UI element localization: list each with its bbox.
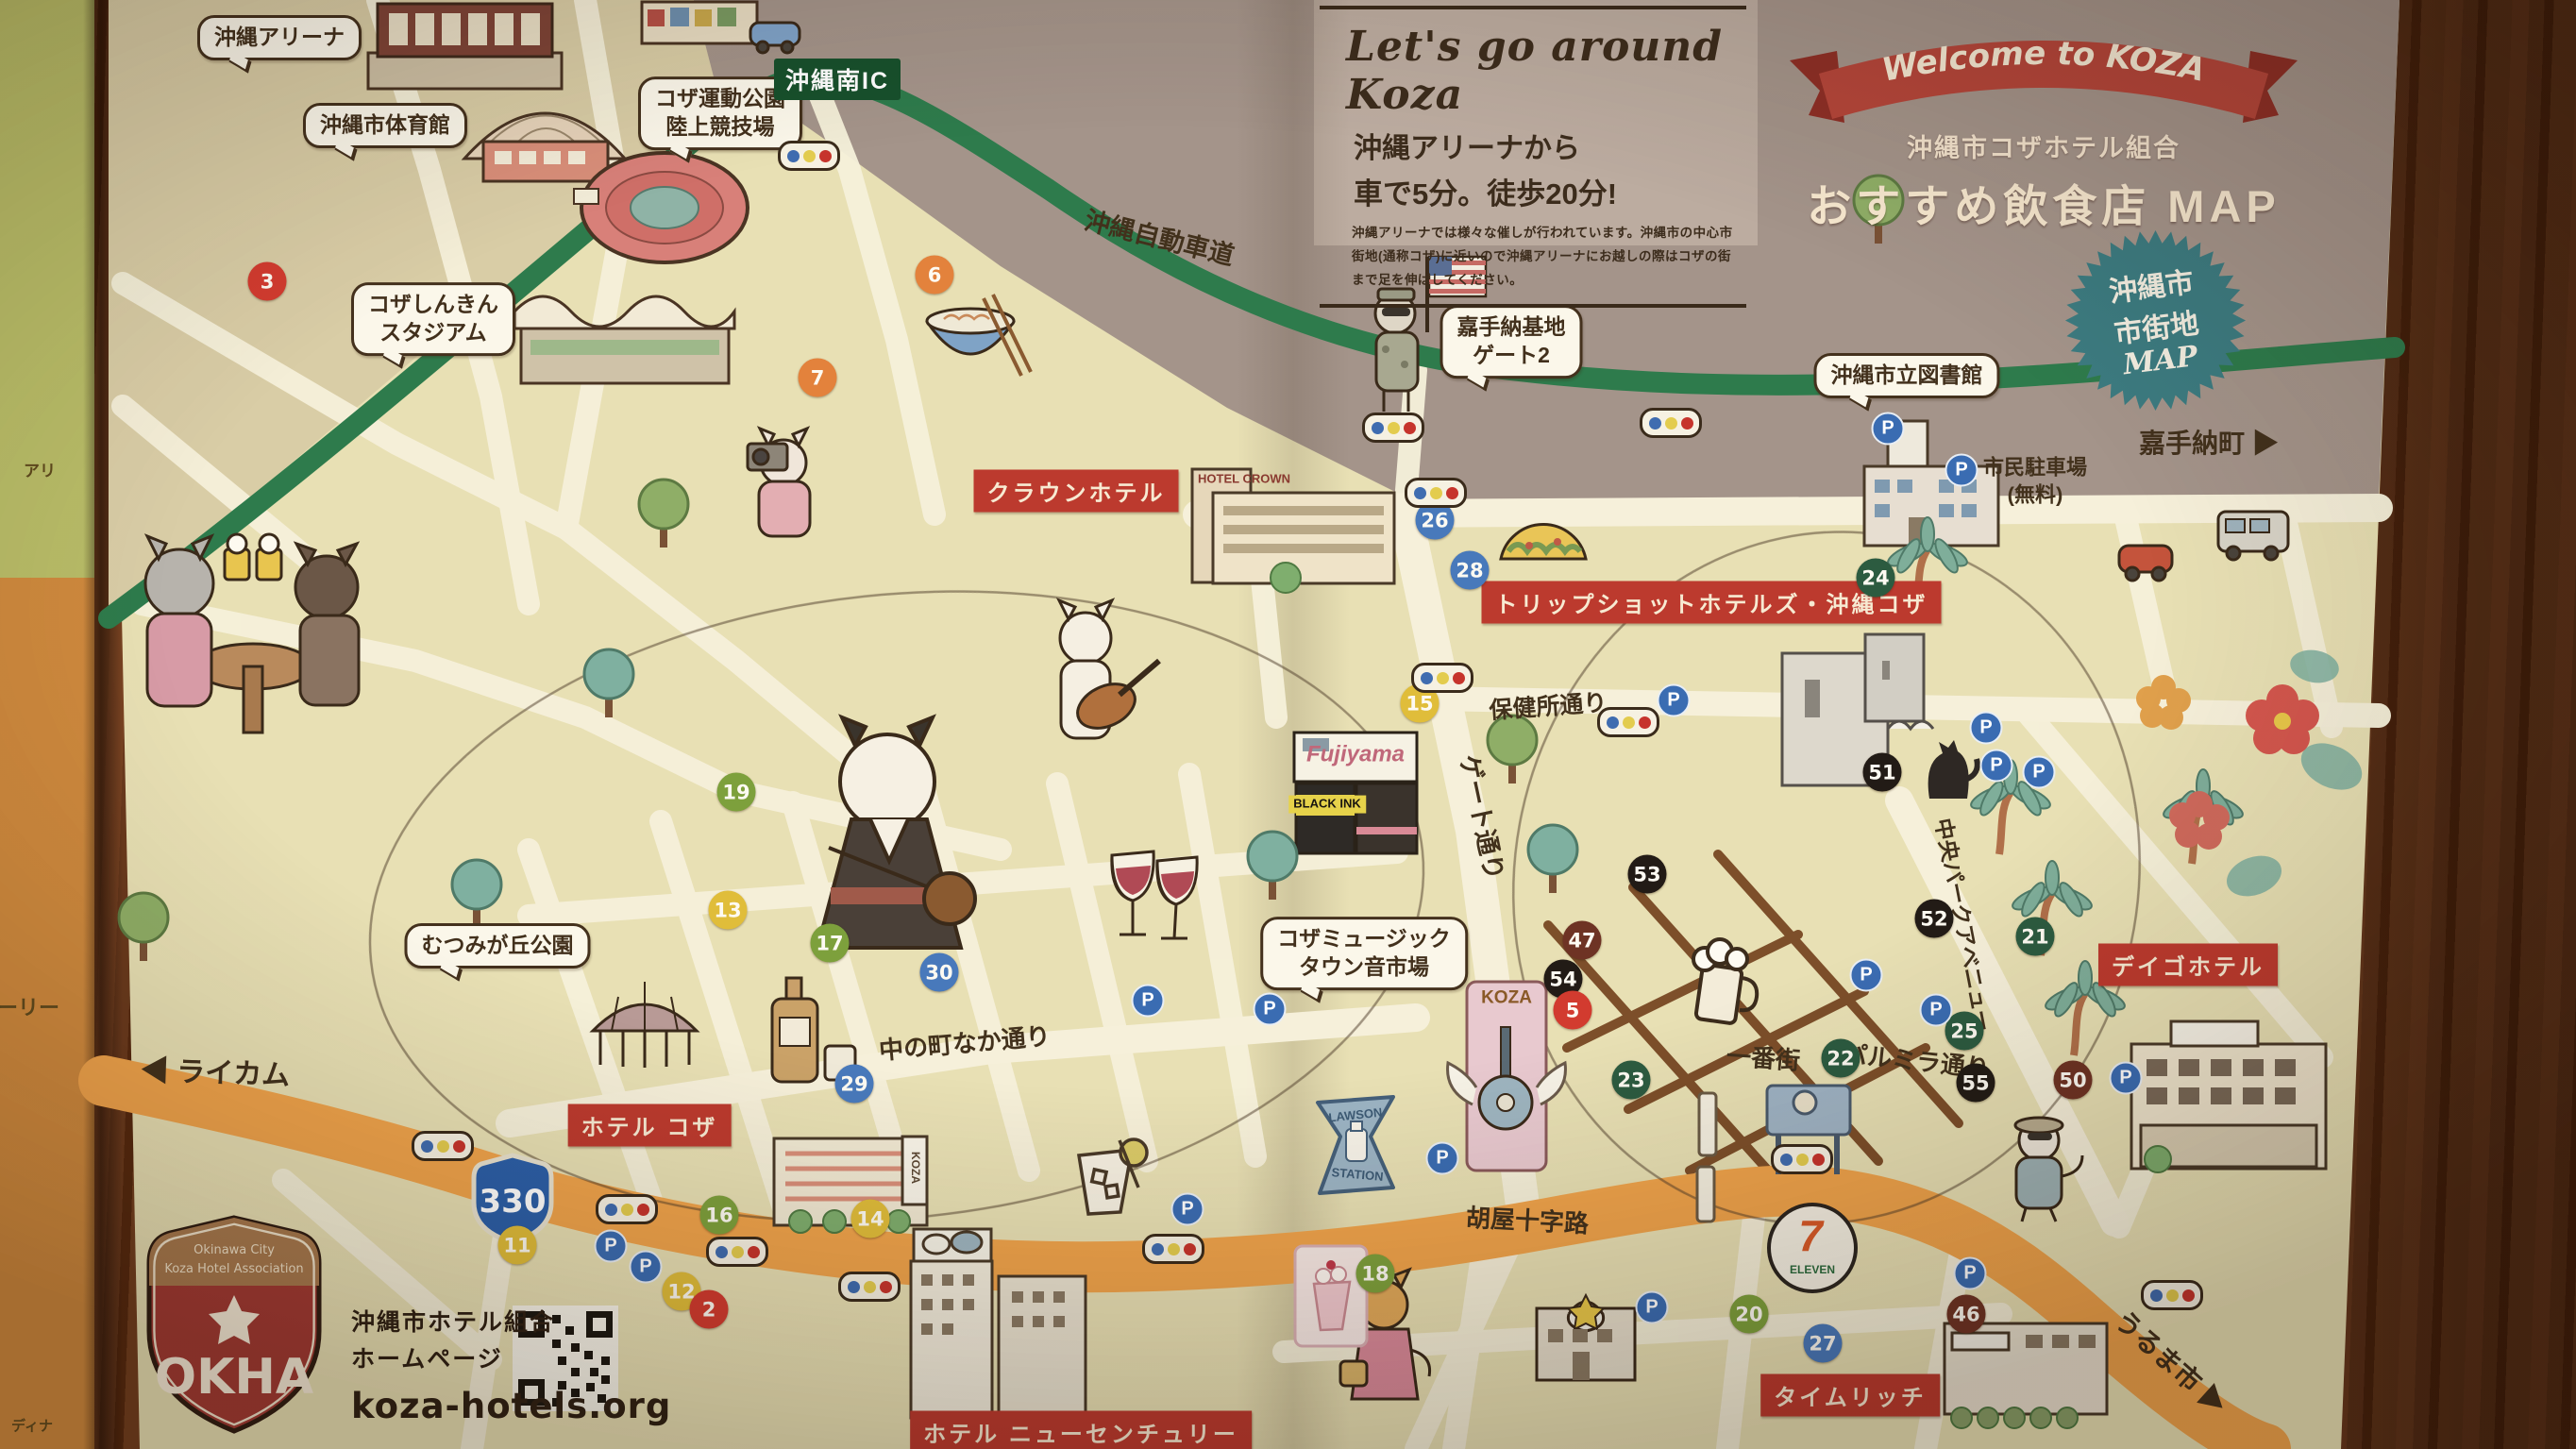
street-name-text: ゲート通り <box>1452 751 1510 883</box>
okinawa-minami-ic-sign: 沖縄南IC <box>774 59 901 100</box>
street-name-text: 嘉手納町 ▶ <box>2139 427 2279 461</box>
hotel-name-label: ホテル コザ <box>568 1104 732 1147</box>
map-marker-21: 21 <box>2016 918 2055 956</box>
traffic-light-icon <box>1142 1234 1204 1264</box>
okha-logo: Okinawa City Koza Hotel Association OKHA <box>140 1212 328 1439</box>
traffic-light-icon <box>1411 663 1473 693</box>
street-name-text: ELEVEN <box>1790 1263 1835 1278</box>
map-marker-27: 27 <box>1804 1324 1843 1363</box>
parking-icon: P <box>595 1230 628 1263</box>
street-name-text: 市民駐車場 (無料) <box>1983 454 2087 508</box>
parking-icon: P <box>1636 1291 1669 1324</box>
photo-of-koza-tourist-map: 330 沖縄アリーナ沖縄市体育館コザ運動公園 陸上競技場コザしんきん スタジアム… <box>0 0 2576 1449</box>
map-marker-47: 47 <box>1563 921 1602 960</box>
street-name-text: KOZA <box>1481 987 1532 1011</box>
map-marker-7: 7 <box>799 359 837 397</box>
street-name-text: KOZA <box>907 1152 922 1184</box>
street-name-text: 胡屋十字路 <box>1465 1203 1590 1241</box>
map-marker-2: 2 <box>690 1290 729 1329</box>
parking-icon: P <box>1254 993 1287 1026</box>
map-label-bubble: 沖縄アリーナ <box>197 15 362 60</box>
map-marker-23: 23 <box>1612 1061 1651 1100</box>
association-name: 沖縄市ホテル組合 <box>351 1305 671 1341</box>
street-name-text: 一番街 <box>1726 1040 1801 1077</box>
hotel-name-label: ホテル ニューセンチュリー <box>910 1411 1252 1449</box>
street-name-text: 7 <box>1798 1208 1823 1265</box>
okha-logo-line1: Okinawa City <box>194 1243 275 1257</box>
street-name-text: LAWSON <box>1328 1105 1384 1127</box>
traffic-light-icon <box>412 1131 474 1161</box>
map-label-bubble: 沖縄市立図書館 <box>1814 353 2000 398</box>
intro-block: Let's go around Koza 沖縄アリーナから 車で5分。徒歩20分… <box>1320 6 1746 308</box>
hotel-association-homepage: 沖縄市ホテル組合 ホームページ koza-hotels.org <box>351 1305 671 1426</box>
parking-icon: P <box>1426 1142 1459 1175</box>
intro-line2: 車で5分。徒歩20分! <box>1354 170 1746 212</box>
map-marker-29: 29 <box>835 1065 874 1104</box>
adjacent-page-text-fragment: アリ <box>24 458 56 481</box>
title-banner: Welcome to KOZA 沖縄市コザホテル組合 おすすめ飲食店 MAP <box>1776 8 2311 235</box>
map-marker-50: 50 <box>2054 1061 2093 1100</box>
parking-icon: P <box>1970 712 2003 745</box>
map-marker-13: 13 <box>709 891 748 930</box>
map-marker-20: 20 <box>1730 1295 1769 1334</box>
traffic-light-icon <box>1771 1144 1833 1174</box>
map-marker-19: 19 <box>717 773 756 812</box>
hotel-name-label: デイゴホテル <box>2098 944 2278 986</box>
map-marker-14: 14 <box>851 1200 890 1238</box>
ic-sign-text: 沖縄南IC <box>785 68 889 94</box>
hotel-name-label: クラウンホテル <box>974 470 1179 513</box>
traffic-light-icon <box>1362 413 1424 443</box>
homepage-url: koza-hotels.org <box>351 1386 671 1426</box>
adjacent-page-text-fragment: ディナ <box>11 1416 53 1436</box>
parking-icon: P <box>1171 1193 1204 1226</box>
map-marker-6: 6 <box>916 256 954 295</box>
traffic-light-icon <box>838 1272 901 1302</box>
traffic-light-icon <box>2141 1280 2203 1310</box>
street-name-text: STATION <box>1331 1165 1384 1186</box>
parking-icon: P <box>1132 985 1165 1018</box>
map-marker-28: 28 <box>1451 551 1490 590</box>
parking-icon: P <box>1920 994 1953 1027</box>
street-name-text: うるま市 ▶ <box>2107 1304 2233 1423</box>
map-marker-52: 52 <box>1915 900 1954 938</box>
map-marker-17: 17 <box>811 924 850 963</box>
street-name-text: HOTEL CROWN <box>1198 472 1290 488</box>
intro-body: 沖縄アリーナでは様々な催しが行われています。沖縄市の中心市街地(通称コザ)に近い… <box>1352 222 1737 293</box>
map-marker-18: 18 <box>1356 1255 1395 1293</box>
map-label-bubble: 沖縄市体育館 <box>303 103 467 148</box>
intro-line1: 沖縄アリーナから <box>1354 125 1746 166</box>
parking-icon: P <box>2110 1062 2143 1095</box>
parking-icon: P <box>1872 413 1905 446</box>
map-marker-11: 11 <box>498 1226 537 1265</box>
parking-icon: P <box>1954 1257 1987 1290</box>
banner-organization: 沖縄市コザホテル組合 <box>1776 127 2311 164</box>
map-marker-30: 30 <box>920 953 959 992</box>
map-marker-22: 22 <box>1822 1039 1860 1078</box>
map-label-bubble: コザしんきん スタジアム <box>351 282 515 356</box>
street-name-text: ◀ ライカム <box>140 1053 291 1095</box>
map-marker-5: 5 <box>1554 991 1592 1030</box>
rule-bottom <box>1320 304 1746 308</box>
traffic-light-icon <box>1597 707 1659 737</box>
map-marker-55: 55 <box>1957 1064 1995 1103</box>
parking-icon: P <box>1850 959 1883 992</box>
parking-icon: P <box>2023 756 2056 789</box>
map-marker-24: 24 <box>1857 559 1895 598</box>
parking-icon: P <box>1658 684 1691 717</box>
street-name-text: 保健所通り <box>1489 687 1608 726</box>
traffic-light-icon <box>706 1237 768 1267</box>
map-marker-51: 51 <box>1863 753 1902 792</box>
parking-icon: P <box>1945 454 1978 487</box>
map-marker-3: 3 <box>248 262 287 301</box>
traffic-light-icon <box>1405 478 1467 508</box>
traffic-light-icon <box>1640 408 1702 438</box>
rule-top <box>1320 6 1746 9</box>
street-name-text: Fujiyama <box>1306 739 1405 768</box>
map-label-bubble: コザミュージック タウン音市場 <box>1260 917 1468 990</box>
map-marker-16: 16 <box>700 1196 739 1235</box>
okha-logo-line2: Koza Hotel Association <box>164 1262 303 1276</box>
intro-title: Let's go around Koza <box>1346 23 1746 119</box>
map-label-bubble: 嘉手納基地 ゲート2 <box>1440 305 1583 379</box>
street-name-text: 中の町なか通り <box>878 1020 1052 1068</box>
map-marker-53: 53 <box>1628 855 1667 894</box>
adjacent-page-text-fragment: ーリー <box>0 991 59 1021</box>
traffic-light-icon <box>596 1194 658 1224</box>
map-marker-46: 46 <box>1947 1295 1986 1334</box>
map-label-bubble: むつみが丘公園 <box>405 923 591 969</box>
homepage-label: ホームページ <box>351 1341 671 1378</box>
parking-icon: P <box>630 1251 663 1284</box>
okha-logo-acronym: OKHA <box>155 1349 313 1406</box>
city-area-map-badge: 沖縄市 市街地 MAP <box>2063 228 2248 413</box>
hotel-name-label: タイムリッチ <box>1760 1374 1940 1417</box>
traffic-light-icon <box>778 141 840 171</box>
street-name-text: BLACK INK <box>1288 796 1366 814</box>
street-name-text: 沖縄自動車道 <box>1081 204 1237 273</box>
ribbon-banner: Welcome to KOZA <box>1776 8 2311 126</box>
parking-icon: P <box>1980 750 2013 783</box>
